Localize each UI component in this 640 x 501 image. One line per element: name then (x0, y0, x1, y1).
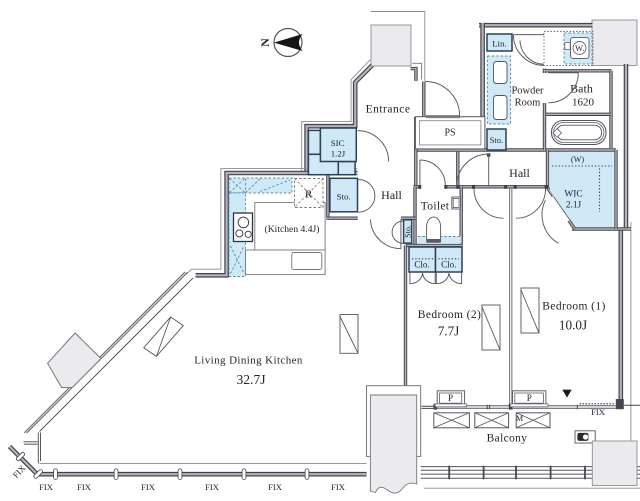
svg-text:PS: PS (444, 128, 455, 139)
svg-text:Sto.: Sto. (490, 136, 503, 145)
svg-text:N: N (258, 38, 272, 47)
svg-text:(Kitchen 4.4J): (Kitchen 4.4J) (265, 224, 320, 235)
svg-text:7.7J: 7.7J (438, 324, 460, 339)
svg-text:Entrance: Entrance (366, 104, 411, 116)
svg-text:SIC: SIC (331, 138, 345, 148)
svg-text:2.1J: 2.1J (566, 201, 582, 211)
svg-text:FIX: FIX (331, 482, 346, 492)
svg-text:Room: Room (515, 98, 541, 109)
svg-text:FIX: FIX (141, 482, 156, 492)
svg-text:P: P (527, 393, 532, 403)
svg-text:1.2J: 1.2J (331, 149, 346, 159)
svg-text:32.7J: 32.7J (236, 372, 265, 387)
svg-text:Balcony: Balcony (487, 433, 528, 445)
svg-text:Lin.: Lin. (492, 39, 506, 49)
svg-text:Living Dining Kitchen: Living Dining Kitchen (194, 355, 303, 367)
svg-text:Clo.: Clo. (441, 260, 456, 270)
svg-text:FIX: FIX (77, 482, 92, 492)
svg-text:Sto.: Sto. (403, 225, 412, 238)
svg-text:Powder: Powder (511, 86, 544, 97)
svg-text:Hall: Hall (381, 188, 402, 202)
svg-text:Hall: Hall (509, 166, 530, 180)
svg-text:FIX: FIX (205, 482, 220, 492)
svg-text:Bedroom (2): Bedroom (2) (418, 309, 481, 321)
svg-text:10.0J: 10.0J (559, 318, 587, 333)
svg-text:R: R (305, 188, 313, 200)
svg-text:(W): (W) (571, 155, 584, 164)
svg-text:1620: 1620 (572, 97, 595, 109)
svg-text:Sto.: Sto. (337, 191, 351, 201)
svg-text:FIX: FIX (268, 482, 283, 492)
svg-text:Bedroom (1): Bedroom (1) (542, 300, 605, 312)
svg-text:W.: W. (575, 44, 584, 53)
svg-text:P: P (448, 393, 453, 403)
svg-text:M: M (516, 414, 523, 423)
svg-text:Toilet: Toilet (421, 201, 450, 213)
svg-text:FIX: FIX (39, 482, 54, 492)
svg-text:WIC: WIC (564, 190, 582, 200)
svg-text:Clo.: Clo. (414, 260, 429, 270)
